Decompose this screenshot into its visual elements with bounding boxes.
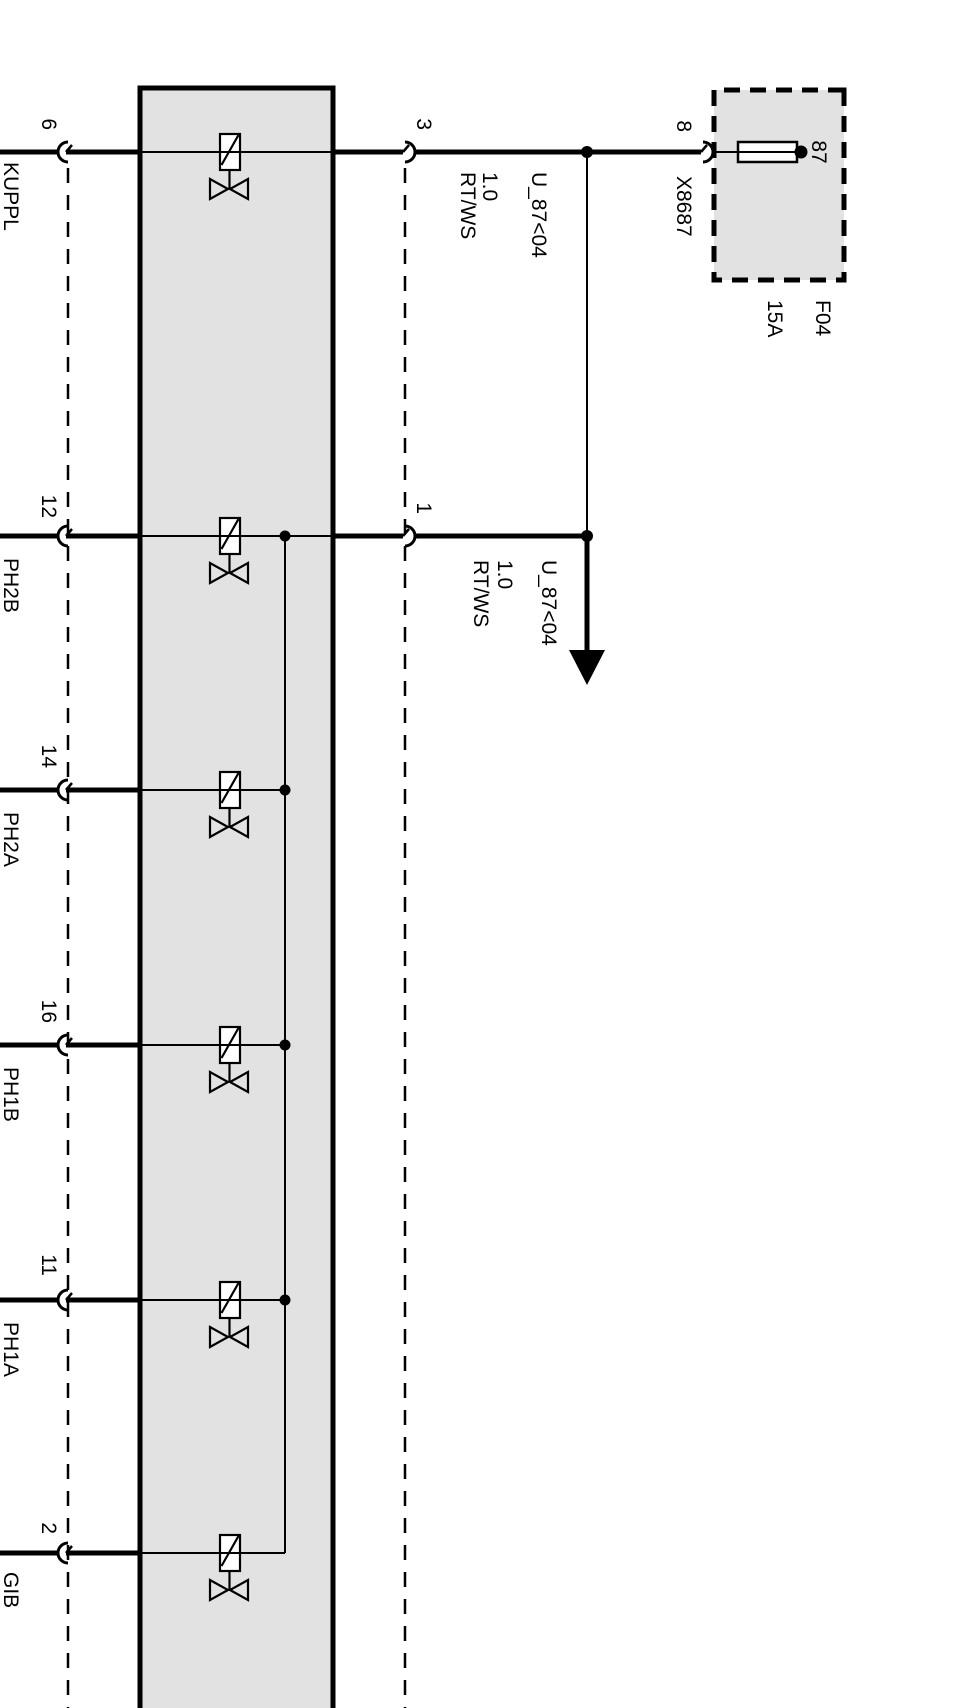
- bus-dot: [280, 1295, 291, 1306]
- pin-number-8: 8: [672, 120, 695, 132]
- junction-dots: [280, 146, 808, 1306]
- continuation-arrow-icon: [569, 650, 605, 685]
- fuse-rating-label: 15A: [763, 300, 786, 337]
- fuse-terminal-label: 87: [807, 140, 830, 163]
- pin3-tick: [403, 145, 409, 152]
- junction-dot: [581, 146, 593, 158]
- pin-number-14: 14: [37, 745, 60, 769]
- wire-label-branch: U_87<04 1.0 RT/WS: [469, 560, 560, 646]
- fuse-id-label: F04: [811, 300, 834, 337]
- output-label-ph2b: PH2B: [0, 558, 22, 613]
- wire-gauge-label: 1.0: [493, 560, 516, 589]
- rotated-diagram: 87 F04 15A 8 X8687 3 1 U_87<04 1.0 RT/WS…: [0, 88, 844, 1708]
- wire-gauge-label: 1.0: [478, 172, 501, 201]
- wire-label-supply: U_87<04 1.0 RT/WS: [456, 172, 550, 258]
- pin-number-1: 1: [412, 502, 435, 514]
- pin-number-6: 6: [37, 118, 60, 130]
- connector-id-label: X8687: [672, 176, 695, 237]
- pin-number-11: 11: [37, 1254, 60, 1276]
- bus-dot: [280, 1040, 291, 1051]
- output-label-ph2a: PH2A: [0, 812, 22, 867]
- pin-number-2: 2: [37, 1522, 60, 1534]
- output-label-kuppl: KUPPL: [0, 162, 22, 231]
- output-label-gib: GIB: [0, 1572, 22, 1608]
- bus-dot: [280, 785, 291, 796]
- output-label-ph1b: PH1B: [0, 1067, 22, 1122]
- pin-number-3: 3: [412, 118, 435, 130]
- pin1-terminal-arc: [405, 526, 415, 546]
- pin8-tick: [701, 145, 707, 152]
- fuse-terminal-dot: [795, 146, 808, 159]
- pin3-terminal-arc: [405, 142, 415, 162]
- bus-dot: [280, 531, 291, 542]
- schematic-page: 87 F04 15A 8 X8687 3 1 U_87<04 1.0 RT/WS…: [0, 0, 962, 1708]
- wire-color-label: RT/WS: [456, 172, 479, 239]
- wire-color-label: RT/WS: [469, 560, 492, 627]
- junction-dot: [581, 530, 593, 542]
- wire-circuit-label: U_87<04: [537, 560, 560, 646]
- pin-number-16: 16: [37, 1000, 60, 1023]
- fuse-box: [714, 90, 844, 280]
- wiring-diagram-canvas: 87 F04 15A 8 X8687 3 1 U_87<04 1.0 RT/WS…: [0, 0, 962, 1708]
- pin8-terminal-arc: [703, 142, 713, 162]
- output-label-ph1a: PH1A: [0, 1322, 22, 1377]
- wires-thick: [0, 152, 701, 1553]
- pin-number-12: 12: [37, 495, 60, 518]
- valve-block-box: [140, 88, 333, 1708]
- wire-circuit-label: U_87<04: [527, 172, 550, 258]
